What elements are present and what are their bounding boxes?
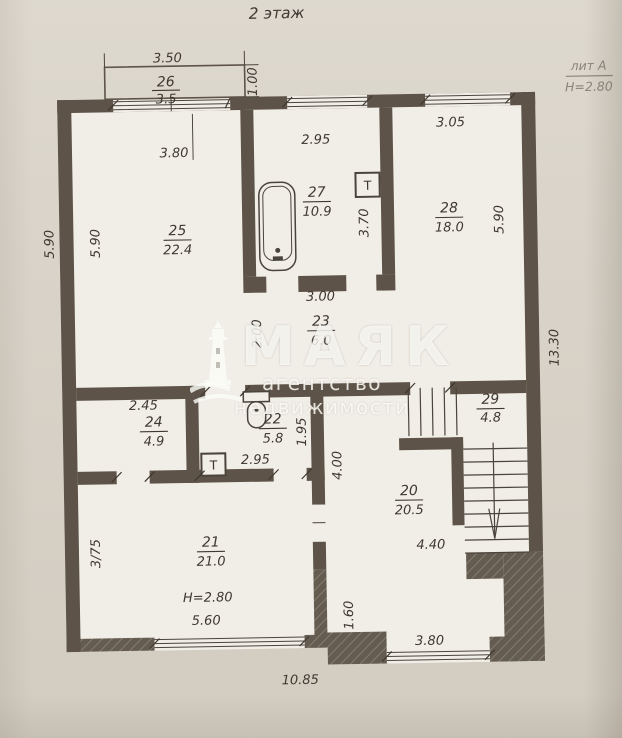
dim-room21-ceiling-height: Н=2.80 xyxy=(183,590,233,606)
dim-balcony-width: 3.50 xyxy=(153,51,182,67)
svg-text:26: 26 xyxy=(157,74,175,90)
svg-text:10.9: 10.9 xyxy=(302,204,331,220)
dim-room28-width: 3.05 xyxy=(436,115,465,131)
svg-text:22.4: 22.4 xyxy=(163,243,192,259)
svg-text:6.0: 6.0 xyxy=(311,333,332,348)
dim-room28-height: 5.90 xyxy=(492,205,508,234)
svg-text:18.0: 18.0 xyxy=(435,220,464,236)
dim-room20-step-height: 1.60 xyxy=(342,601,358,630)
floorplan-drawing: 2 этаж лит А Н=2.80 xyxy=(0,0,622,738)
svg-text:29: 29 xyxy=(481,392,499,408)
dim-room25-width: 3.80 xyxy=(159,146,188,162)
dim-balcony-depth: 1.00 xyxy=(246,67,262,96)
building-footprint xyxy=(57,92,545,669)
svg-text:24: 24 xyxy=(145,414,163,430)
boiler-bathroom-icon: Т xyxy=(355,173,379,197)
corner-note-underline xyxy=(566,75,613,76)
window-room21 xyxy=(154,635,304,651)
boiler-bathroom-label: Т xyxy=(363,178,372,193)
svg-text:5.8: 5.8 xyxy=(263,431,284,446)
svg-text:20.5: 20.5 xyxy=(395,503,424,519)
svg-text:28: 28 xyxy=(440,200,458,216)
dim-room20-left-height: 4.00 xyxy=(330,451,346,480)
floor-title: 2 этаж xyxy=(249,4,305,23)
dim-room27-width: 2.95 xyxy=(301,132,330,148)
svg-text:27: 27 xyxy=(308,185,326,201)
svg-text:25: 25 xyxy=(168,223,186,239)
corner-note: лит А Н=2.80 xyxy=(565,57,613,94)
opening-room21-room20 xyxy=(312,505,326,542)
boiler-wc-icon: Т xyxy=(201,453,225,475)
svg-text:23: 23 xyxy=(312,313,330,329)
window-room20 xyxy=(387,649,490,664)
dim-room21-window: 5.60 xyxy=(192,613,221,629)
dim-room25-height: 5.90 xyxy=(88,229,104,258)
dim-room23-width: 3.00 xyxy=(306,289,335,305)
boiler-wc-label: Т xyxy=(209,457,218,472)
window-room27 xyxy=(287,95,367,109)
dim-room22-width: 2.95 xyxy=(241,453,270,469)
corner-note-lit: лит А xyxy=(569,58,606,74)
scanned-floorplan-page: 2 этаж лит А Н=2.80 xyxy=(0,0,622,738)
svg-text:21.0: 21.0 xyxy=(197,554,226,570)
dim-room21-left-height: 3/75 xyxy=(89,539,105,568)
svg-text:4.9: 4.9 xyxy=(144,434,165,449)
dim-room20-window: 3.80 xyxy=(415,634,444,650)
dim-room27-height: 3.70 xyxy=(357,208,373,237)
dim-room23-height: 2.00 xyxy=(250,319,266,348)
corner-note-height: Н=2.80 xyxy=(565,78,613,94)
svg-text:3.5: 3.5 xyxy=(156,92,177,107)
dim-outer-right-height: 13.30 xyxy=(547,329,563,366)
svg-text:20: 20 xyxy=(400,483,418,499)
dim-room22-height: 1.95 xyxy=(295,417,311,446)
dim-building-width: 10.85 xyxy=(282,673,319,689)
svg-text:4.8: 4.8 xyxy=(480,410,501,425)
dim-room20-width: 4.40 xyxy=(416,537,445,553)
room-label-26: 26 3.5 xyxy=(152,74,181,107)
svg-text:22: 22 xyxy=(264,411,282,427)
dim-room24-width: 2.45 xyxy=(129,398,158,414)
bathtub-icon xyxy=(259,182,297,271)
dim-outer-left-height: 5.90 xyxy=(42,230,58,259)
window-room28 xyxy=(425,92,510,106)
svg-text:21: 21 xyxy=(202,534,220,550)
